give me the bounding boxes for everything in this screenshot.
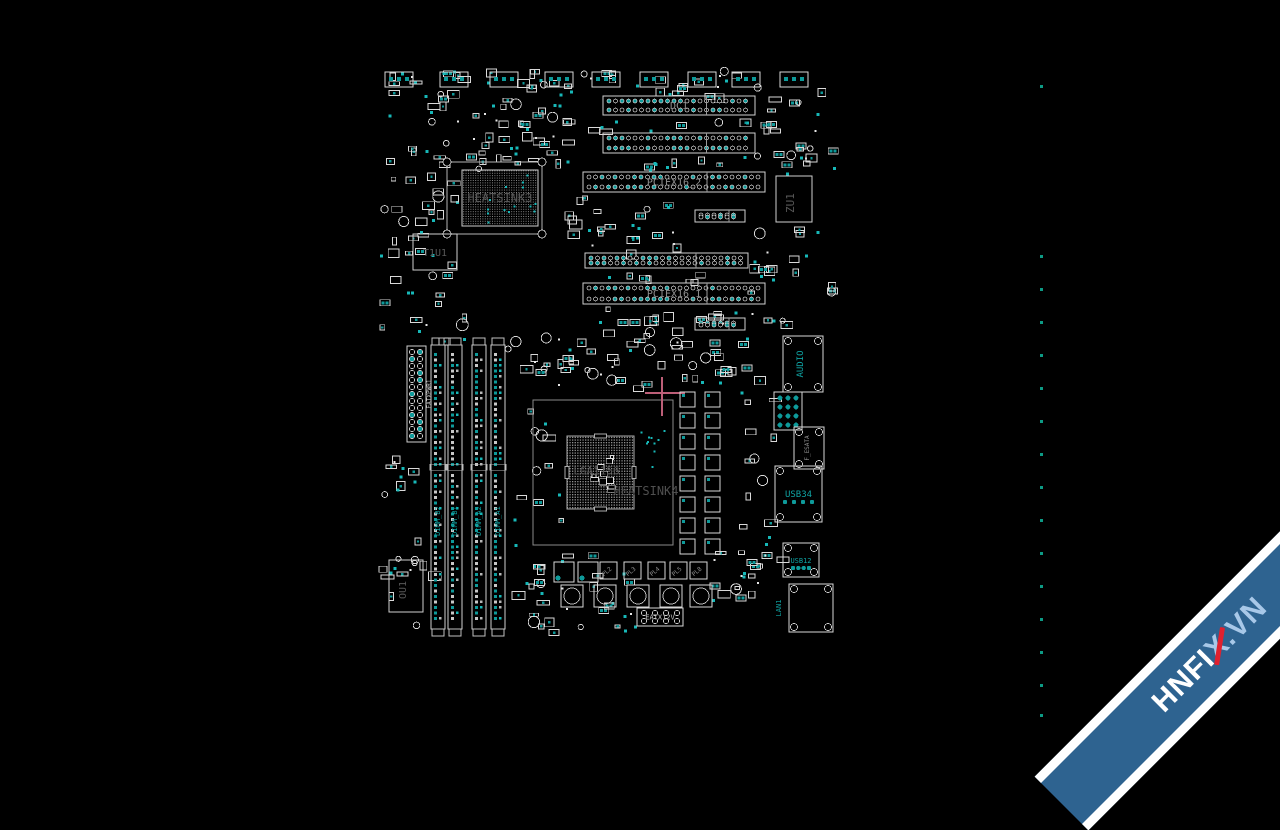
dimm-slot-DIMM_B1[interactable]: DIMM_B1 (447, 338, 463, 636)
io-f-esata[interactable]: F_ESATA (794, 427, 824, 469)
component-label: PL8 (691, 565, 704, 578)
component-label: HEATSINK3 (467, 191, 532, 205)
component-field-9 (558, 327, 692, 391)
component-label: ZU1 (784, 193, 797, 213)
component-label: LAN1 (775, 600, 783, 617)
component-label: DIMM_B1 (451, 506, 459, 536)
component-label: PL5 (671, 565, 684, 578)
io-usb12[interactable]: USB12 (783, 543, 819, 577)
io-usb34[interactable]: USB34 (775, 466, 822, 522)
component-label: DIMM_A2 (475, 506, 483, 536)
component-field-13 (505, 333, 563, 628)
io-audio-jacks[interactable] (774, 392, 802, 430)
component-label: PCIEX16_2 (647, 178, 701, 189)
slot-pciex16-2[interactable]: PCIEX16_2 (583, 172, 765, 192)
watermark-red-slash-icon (1214, 627, 1225, 665)
component-label: LGA1156 (573, 465, 619, 478)
slot-short-1[interactable] (695, 210, 745, 222)
chip-zu1[interactable]: ZU1 (776, 176, 812, 222)
component-field-11 (754, 84, 838, 175)
component-label: USB34 (785, 490, 812, 500)
dimm-slot-DIMM_A1[interactable]: DIMM_A1 (490, 338, 506, 636)
component-field-12 (748, 227, 838, 329)
component-field-14 (379, 456, 441, 629)
component-label: DIMM_B2 (434, 506, 442, 536)
component-label: T1U1 (423, 248, 447, 259)
slot-pciex16-1[interactable]: PCIEX16_1 (583, 283, 765, 304)
right-dot-column (1040, 85, 1043, 717)
component-field-3 (565, 67, 742, 102)
top-edge-headers[interactable] (385, 72, 808, 87)
vrm-area (680, 392, 720, 554)
component-field-8 (599, 307, 738, 335)
component-field-4 (588, 119, 751, 135)
slot-slot-mid[interactable] (585, 253, 748, 268)
component-label: PL2 (601, 565, 614, 578)
io-lan1[interactable]: LAN1 (775, 584, 833, 632)
component-field-0 (386, 69, 574, 167)
boardview-canvas: DC1PCIEX16_2PCIEX16_1DIMM_B2DIMM_B1DIMM_… (0, 0, 1280, 720)
component-field-5 (567, 156, 747, 171)
component-label: AUDIO (796, 350, 806, 377)
component-label: HEATSINK4 (613, 484, 678, 498)
component-label: EATX12V (645, 614, 675, 622)
component-label: DIMM_A1 (494, 506, 502, 536)
component-label: F_ESATA (804, 435, 811, 461)
boardview-svg: DC1PCIEX16_2PCIEX16_1DIMM_B2DIMM_B1DIMM_… (0, 0, 1280, 720)
bottom-power-area[interactable]: PL2PL3PL4PL5PL8EATX12V (554, 562, 712, 626)
slot-slot-b[interactable] (603, 133, 755, 153)
component-field-10 (689, 337, 766, 384)
component-label: PCIEX16_1 (647, 289, 701, 300)
component-label: EATXPWR1 (426, 379, 433, 408)
component-label: DC1 (670, 101, 688, 112)
component-label: PL4 (649, 565, 662, 578)
dimm-slot-DIMM_A2[interactable]: DIMM_A2 (471, 338, 487, 636)
slot-dc1[interactable]: DC1 (603, 96, 755, 115)
cpu-socket-lga1156[interactable]: LGA1156HEATSINK4 (533, 377, 685, 545)
component-field-15 (526, 553, 637, 636)
component-field-6 (565, 196, 681, 259)
io-audio[interactable]: AUDIO (783, 336, 823, 392)
component-label: USB12 (790, 557, 811, 565)
component-label: OU1 (398, 581, 409, 599)
connector-eatxpwr1[interactable]: EATXPWR1 (407, 346, 433, 442)
component-label: PL3 (625, 565, 638, 578)
